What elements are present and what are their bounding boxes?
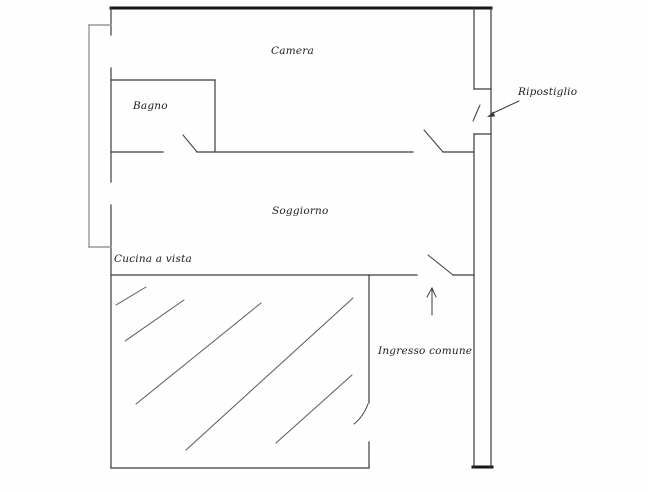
- right-wall: [473, 8, 491, 467]
- camera-label: Camera: [271, 45, 314, 57]
- hatch-line-2: [125, 300, 184, 341]
- left-wall: [89, 8, 111, 468]
- ripostiglio-label: Ripostiglio: [518, 86, 577, 98]
- ripostiglio-pointer-arrow: [487, 101, 519, 117]
- outer-walls: [111, 8, 492, 467]
- camera-door-leaf: [424, 130, 443, 152]
- ingresso-label: Ingresso comune: [378, 345, 472, 357]
- ripostiglio-door-leaf: [473, 105, 480, 121]
- floor-plan-drawing: [0, 0, 648, 492]
- cucina-door-leaf: [354, 404, 368, 424]
- cucina-label: Cucina a vista: [114, 253, 192, 265]
- hatch-line-5: [276, 375, 352, 443]
- divider-camera-soggiorno: [111, 130, 474, 152]
- bagno-walls: [111, 80, 215, 152]
- floor-plan-page: Camera Bagno Soggiorno Cucina a vista In…: [0, 0, 648, 492]
- bagno-label: Bagno: [133, 100, 168, 112]
- soggiorno-label: Soggiorno: [272, 205, 329, 217]
- hatch-line-3: [136, 303, 261, 404]
- soggiorno-door-leaf: [428, 255, 453, 275]
- cucina-room: [111, 275, 369, 468]
- hatch-line-4: [186, 298, 353, 450]
- entrance-direction-arrow: [427, 288, 436, 315]
- bagno-door-leaf: [183, 135, 197, 152]
- hatch-line-1: [116, 287, 146, 305]
- pointer-arrow-shaft: [491, 101, 519, 114]
